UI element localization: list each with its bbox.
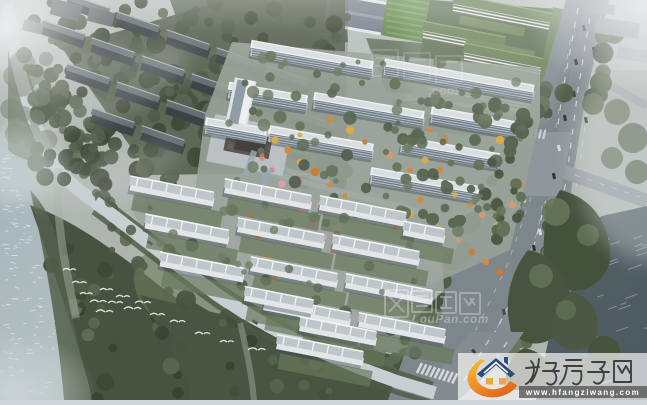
svg-text:LouPan.com: LouPan.com: [412, 314, 489, 326]
svg-text:www.hfangziwang.com: www.hfangziwang.com: [525, 388, 640, 397]
svg-text:.com: .com: [428, 83, 459, 98]
